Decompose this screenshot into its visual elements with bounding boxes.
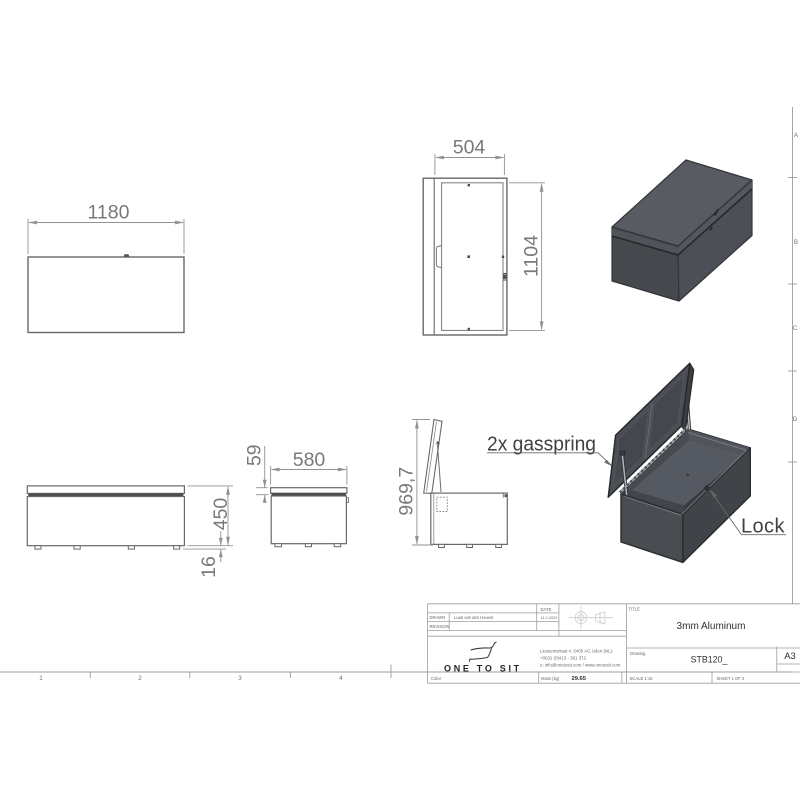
svg-text:4: 4 [339,675,343,682]
svg-text:STB120_: STB120_ [691,654,728,664]
svg-text:Mass (kg): Mass (kg) [541,676,560,681]
svg-text:16: 16 [198,556,220,578]
svg-text:1180: 1180 [88,202,130,224]
svg-text:TITLE: TITLE [629,607,641,612]
svg-text:59: 59 [243,444,265,466]
svg-text:504: 504 [453,137,486,159]
svg-text:A3: A3 [784,651,796,662]
svg-text:REVISION: REVISION [430,624,450,629]
svg-text:DRAWN: DRAWN [430,615,446,620]
svg-text:11-1-2021: 11-1-2021 [541,616,558,620]
svg-text:ONE TO SIT: ONE TO SIT [444,663,522,673]
svg-text:1104: 1104 [521,235,543,277]
svg-text:29.65: 29.65 [572,676,587,682]
svg-text:Color: Color [431,676,442,681]
svg-text:Luuk van den Heuvel: Luuk van den Heuvel [454,615,493,620]
svg-text:DATE: DATE [541,607,552,612]
svg-text:SHEET 1 OF 2: SHEET 1 OF 2 [717,676,746,681]
svg-text:2x gasspring: 2x gasspring [487,433,596,455]
svg-text:1: 1 [39,675,43,682]
svg-text:3mm Aluminum: 3mm Aluminum [677,621,746,632]
svg-text:SCALE 1:15: SCALE 1:15 [630,676,654,681]
svg-text:C: C [793,325,798,332]
svg-text:580: 580 [293,449,326,471]
svg-text:+0031 (0)413 - 361 372: +0031 (0)413 - 361 372 [540,655,587,660]
svg-text:D: D [793,416,798,423]
svg-text:B: B [794,239,798,246]
svg-text:450: 450 [210,498,232,531]
svg-text:969,7: 969,7 [396,467,418,516]
svg-text:Drawing: Drawing [630,651,646,656]
svg-text:e: info@onetosit.com / www.one: e: info@onetosit.com / www.onetosit.com [540,662,621,667]
svg-text:3: 3 [238,675,242,682]
svg-text:2: 2 [138,675,142,682]
svg-text:Liessentstraat 4, 5405 AG Uden: Liessentstraat 4, 5405 AG Uden (NL). [540,648,613,653]
